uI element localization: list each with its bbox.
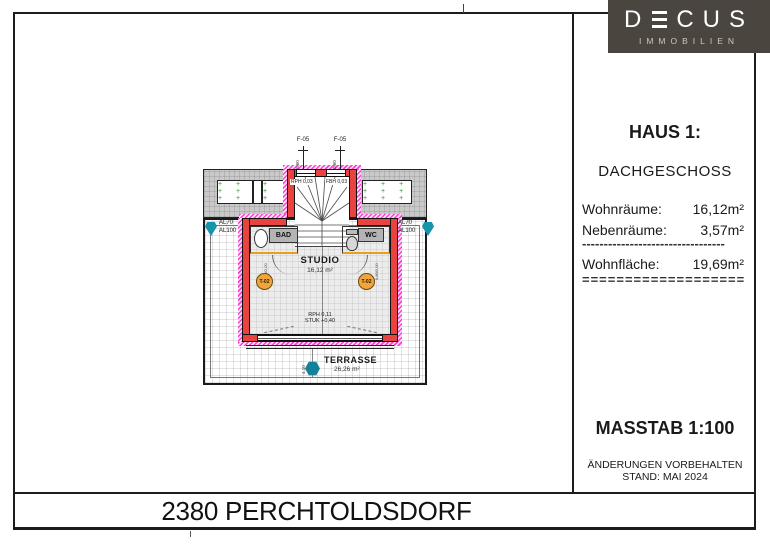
door-marker-left-label: T-02 <box>259 279 269 285</box>
leader-tick-left <box>298 150 308 151</box>
scale-label: MASSTAB 1:100 <box>574 418 756 439</box>
room-wc-label-box: WC <box>358 228 384 242</box>
wall-bottom-stub-left <box>242 334 258 342</box>
room-bad-label-box: BAD <box>269 228 298 243</box>
staircase <box>295 177 349 247</box>
floor-plan-sheet: F-05 F-05 0,60 0,60 RPH 0,03 FBH 0,03 BA… <box>0 0 770 544</box>
area-row-wohnraeume-label: Wohnräume: <box>582 201 662 217</box>
area-row-wohnraeume-value: 16,12m² <box>693 201 744 217</box>
al-left-label-1: AL70 <box>219 220 233 226</box>
leader-tick-right <box>335 150 345 151</box>
house-title: HAUS 1: <box>574 122 756 143</box>
insulation-hatch-right <box>398 218 402 346</box>
area-row-wohnraeume: Wohnräume: 16,12m² <box>582 201 744 217</box>
terrace-dim-1: 4,10 <box>301 348 306 374</box>
insulation-hatch-stair-right <box>357 169 361 218</box>
door-marker-left: T-02 <box>256 273 273 290</box>
top-tick-mark <box>463 4 464 13</box>
logo-letter-d: D <box>624 8 643 32</box>
door-marker-right-label: T-02 <box>361 279 371 285</box>
wc-tank <box>346 229 358 235</box>
al-left-label-2: AL100 <box>219 228 236 234</box>
level-note-right: FBH 0,03 <box>325 179 348 185</box>
wall-stair-right <box>349 169 357 218</box>
decus-logo-brand: DCUS <box>624 8 754 32</box>
level-note-left: RPH 0,03 <box>290 179 314 185</box>
al-right-label-2: AL100 <box>398 228 415 234</box>
decus-logo: DCUS IMMOBILIEN <box>608 0 770 53</box>
window-dim-right: 0,60 <box>332 152 337 169</box>
roof-window-left <box>296 169 316 177</box>
area-row-wohnflaeche-value: 19,69m² <box>693 256 744 272</box>
bottom-tick-mark <box>190 531 191 537</box>
area-row-wohnflaeche-label: Wohnfläche: <box>582 256 660 272</box>
wc-bowl <box>346 236 358 251</box>
window-tag-right: F-05 <box>330 137 350 143</box>
logo-triple-bar-e-icon <box>652 11 667 28</box>
room-wc-label: WC <box>365 232 377 239</box>
double-divider: ==================== <box>582 272 744 287</box>
sheet-title: 2380 PERCHTOLDSDORF <box>13 494 620 528</box>
wall-bottom-stub-right <box>382 334 398 342</box>
date-note: STAND: MAI 2024 <box>574 471 756 483</box>
window-tag-left: F-05 <box>293 137 313 143</box>
wall-stair-left <box>287 169 295 218</box>
logo-letters-cus: CUS <box>676 8 754 32</box>
terrasse-area: 26,26 m² <box>334 366 360 373</box>
disclaimer-note: ÄNDERUNGEN VORBEHALTEN <box>574 459 756 471</box>
wall-right <box>390 218 398 342</box>
decus-logo-subtitle: IMMOBILIEN <box>639 37 739 46</box>
window-dim-left: 0,60 <box>295 152 300 169</box>
terrasse-label: TERRASSE <box>324 355 377 365</box>
bad-sink <box>254 229 268 248</box>
staircase-drawing <box>295 177 349 247</box>
room-bad-label: BAD <box>276 232 291 239</box>
roof-gap-strip <box>253 180 262 204</box>
studio-label: STUDIO <box>250 255 390 266</box>
dashed-divider: --------------------------------- <box>582 236 744 251</box>
floor-title: DACHGESCHOSS <box>574 163 756 180</box>
front-dimension-line <box>246 345 394 349</box>
roof-window-right <box>326 169 346 177</box>
green-roof-panel-left-1 <box>217 180 253 204</box>
area-row-wohnflaeche: Wohnfläche: 19,69m² <box>582 256 744 272</box>
door-marker-right: T-02 <box>358 273 375 290</box>
wall-left <box>242 218 250 342</box>
glazed-front <box>258 334 382 342</box>
studio-floor-note-2: STUK +0,40 <box>250 318 390 324</box>
green-roof-panel-right <box>362 180 412 204</box>
al-right-label-1: AL70 <box>398 220 412 226</box>
